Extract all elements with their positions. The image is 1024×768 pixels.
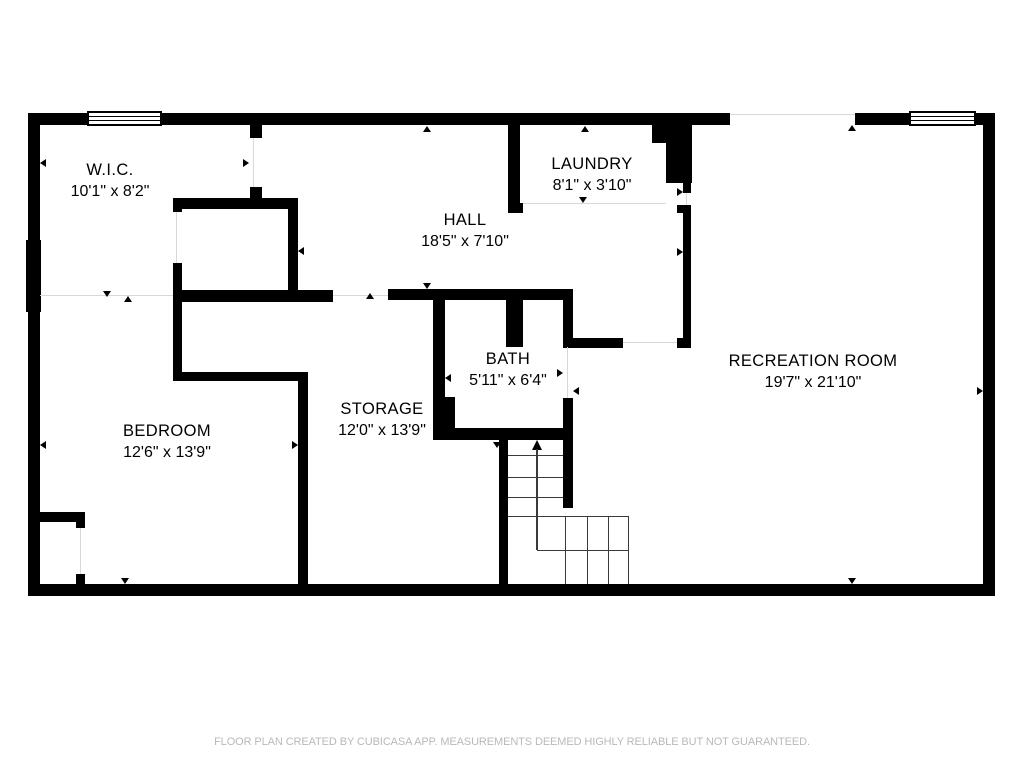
- room-dimensions: 19'7" x 21'10": [729, 372, 898, 393]
- storage-wall-top: [173, 290, 333, 302]
- stair-line: [536, 449, 538, 550]
- door-direction-tick: [493, 442, 501, 448]
- hall-wall-right: [683, 213, 691, 338]
- opening-line: [176, 212, 177, 263]
- room-name: BATH: [469, 349, 547, 370]
- room-label-storage: STORAGE 12'0" x 13'9": [338, 399, 426, 441]
- door-direction-tick: [292, 441, 298, 449]
- door-direction-tick: [445, 374, 451, 382]
- bedroom-closet-wall-right-lower: [76, 574, 85, 584]
- inner-closet-wall-right: [288, 198, 298, 290]
- stair-line: [628, 516, 629, 584]
- bath-wall-notch: [445, 397, 455, 430]
- door-direction-tick: [103, 291, 111, 297]
- stair-line: [537, 550, 629, 551]
- door-direction-tick: [579, 197, 587, 203]
- room-name: LAUNDRY: [551, 154, 632, 175]
- room-name: BEDROOM: [123, 421, 211, 442]
- door-direction-tick: [40, 441, 46, 449]
- laundry-wall-left: [508, 125, 520, 212]
- outer-wall-top-2: [162, 113, 730, 125]
- door-direction-tick: [423, 126, 431, 132]
- opening-line: [686, 193, 687, 205]
- room-label-bedroom: BEDROOM 12'6" x 13'9": [123, 421, 211, 463]
- room-name: HALL: [421, 210, 509, 231]
- floor-plan: W.I.C. 10'1" x 8'2" HALL 18'5" x 7'10" L…: [0, 0, 1024, 768]
- door-direction-tick: [677, 188, 683, 196]
- door-direction-tick: [124, 296, 132, 302]
- door-direction-tick: [298, 247, 304, 255]
- inner-closet-wall-left-upper: [173, 198, 182, 212]
- outer-wall-left: [28, 113, 40, 596]
- outer-wall-right: [983, 113, 995, 596]
- stair-line: [565, 516, 566, 584]
- opening-line: [730, 114, 855, 115]
- room-name: W.I.C.: [71, 160, 150, 181]
- laundry-wall-right-4: [677, 205, 691, 213]
- laundry-wall-right-3: [683, 183, 691, 193]
- opening-line: [333, 295, 388, 296]
- room-label-laundry: LAUNDRY 8'1" x 3'10": [551, 154, 632, 196]
- door-direction-tick: [848, 125, 856, 131]
- door-direction-tick: [581, 126, 589, 132]
- room-name: RECREATION ROOM: [729, 351, 898, 372]
- window-top-right: [909, 111, 976, 126]
- room-label-bath: BATH 5'11" x 6'4": [469, 349, 547, 391]
- room-dimensions: 12'0" x 13'9": [338, 420, 426, 441]
- laundry-wall-right-1: [652, 125, 692, 143]
- door-direction-tick: [573, 387, 579, 395]
- opening-line: [523, 203, 666, 204]
- window-pane-line: [89, 116, 160, 117]
- opening-line: [623, 342, 677, 343]
- bedroom-wall-right: [298, 372, 308, 584]
- door-direction-tick: [366, 293, 374, 299]
- inner-closet-wall-left-lower: [173, 263, 182, 381]
- inner-closet-wall-top: [173, 198, 297, 209]
- room-label-recreation-room: RECREATION ROOM 19'7" x 21'10": [729, 351, 898, 393]
- door-direction-tick: [243, 159, 249, 167]
- opening-line: [567, 347, 568, 398]
- bath-wall-bottom: [433, 428, 573, 440]
- bath-wall-left: [433, 298, 445, 440]
- door-direction-tick: [423, 283, 431, 289]
- room-label-wic: W.I.C. 10'1" x 8'2": [71, 160, 150, 202]
- room-dimensions: 5'11" x 6'4": [469, 370, 547, 391]
- room-label-hall: HALL 18'5" x 7'10": [421, 210, 509, 252]
- room-dimensions: 10'1" x 8'2": [71, 181, 150, 202]
- room-dimensions: 18'5" x 7'10": [421, 231, 509, 252]
- stairs-wall-left: [499, 440, 508, 584]
- footer-disclaimer: FLOOR PLAN CREATED BY CUBICASA APP. MEAS…: [0, 736, 1024, 748]
- bedroom-closet-wall-right-upper: [76, 512, 85, 528]
- bath-wall-right-lower: [563, 398, 573, 508]
- door-direction-tick: [848, 578, 856, 584]
- opening-line: [253, 138, 254, 187]
- room-dimensions: 8'1" x 3'10": [551, 175, 632, 196]
- window-pane-line: [89, 120, 160, 121]
- bedroom-wall-top: [173, 372, 308, 381]
- laundry-wall-left-foot: [508, 203, 523, 213]
- outer-wall-top-3: [855, 113, 910, 125]
- stair-line: [508, 516, 629, 517]
- wic-door-wall-upper: [250, 125, 262, 138]
- hall-wall-south: [563, 338, 623, 348]
- door-direction-tick: [557, 369, 563, 377]
- door-direction-tick: [977, 387, 983, 395]
- room-dimensions: 12'6" x 13'9": [123, 442, 211, 463]
- room-name: STORAGE: [338, 399, 426, 420]
- outer-wall-bottom: [28, 584, 995, 596]
- stair-line: [587, 516, 588, 584]
- door-direction-tick: [677, 248, 683, 256]
- opening-line: [80, 528, 81, 574]
- hall-wall-right-corner: [677, 338, 691, 348]
- window-top-left: [87, 111, 162, 126]
- bath-inner-stub: [506, 298, 523, 347]
- door-direction-tick: [121, 578, 129, 584]
- window-pane-line: [911, 120, 974, 121]
- window-pane-line: [911, 116, 974, 117]
- laundry-wall-right-2: [666, 143, 692, 183]
- stair-line: [608, 516, 609, 584]
- door-direction-tick: [40, 159, 46, 167]
- bath-wall-top: [388, 289, 573, 300]
- door-direction-tick: [512, 189, 518, 197]
